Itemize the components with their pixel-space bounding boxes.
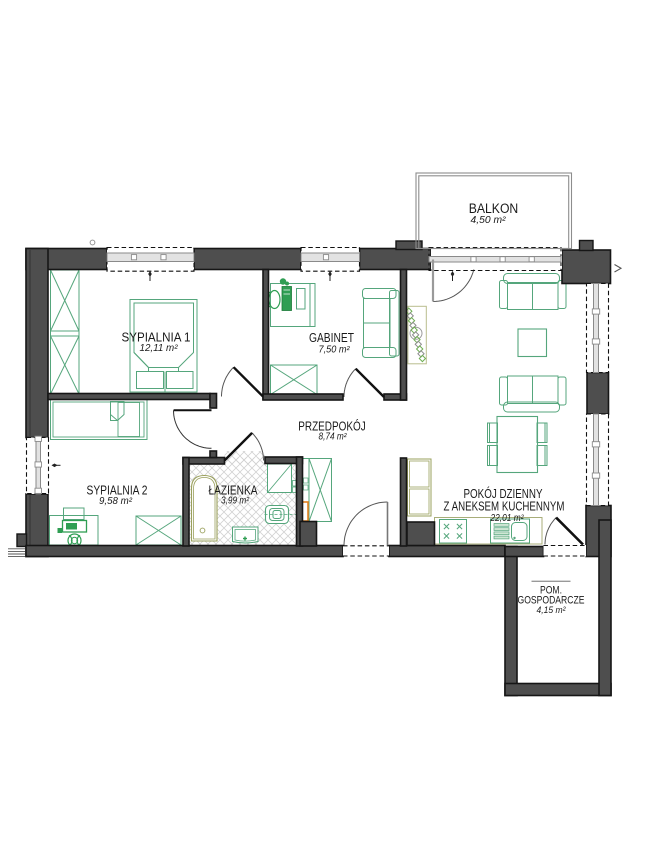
svg-text:GABINET: GABINET [309, 330, 354, 345]
svg-text:4,50 m²: 4,50 m² [471, 215, 507, 226]
svg-text:4,15 m²: 4,15 m² [537, 605, 567, 616]
svg-text:22,01 m²: 22,01 m² [490, 513, 524, 524]
svg-text:3,99 m²: 3,99 m² [221, 496, 250, 507]
svg-text:9,58 m²: 9,58 m² [99, 496, 133, 507]
svg-text:8,74 m²: 8,74 m² [319, 432, 348, 443]
svg-text:12,11 m²: 12,11 m² [140, 343, 179, 354]
svg-text:BALKON: BALKON [469, 201, 519, 216]
svg-text:Z ANEKSEM KUCHENNYM: Z ANEKSEM KUCHENNYM [444, 499, 565, 514]
svg-text:7,50 m²: 7,50 m² [319, 345, 351, 356]
